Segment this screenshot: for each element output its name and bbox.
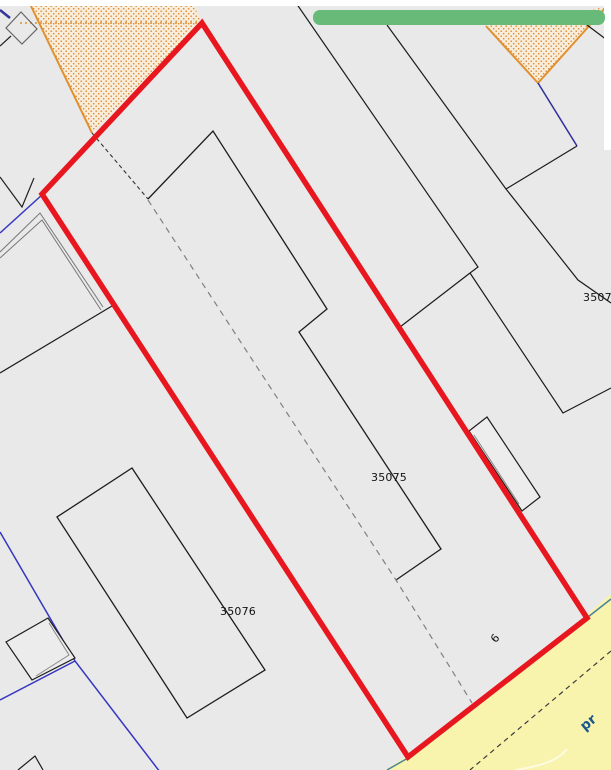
cadastral-map-canvas[interactable] bbox=[0, 0, 611, 770]
parcel-label-35075: 35075 bbox=[371, 471, 407, 484]
parcel-label-35076: 35076 bbox=[220, 605, 256, 618]
map-viewport[interactable]: 35075 35076 3507 6 pr bbox=[0, 0, 611, 770]
right-margin bbox=[604, 0, 611, 150]
top-margin bbox=[0, 0, 611, 6]
toast-bar[interactable] bbox=[313, 10, 605, 25]
parcel-label-350-clipped: 3507 bbox=[583, 291, 611, 304]
